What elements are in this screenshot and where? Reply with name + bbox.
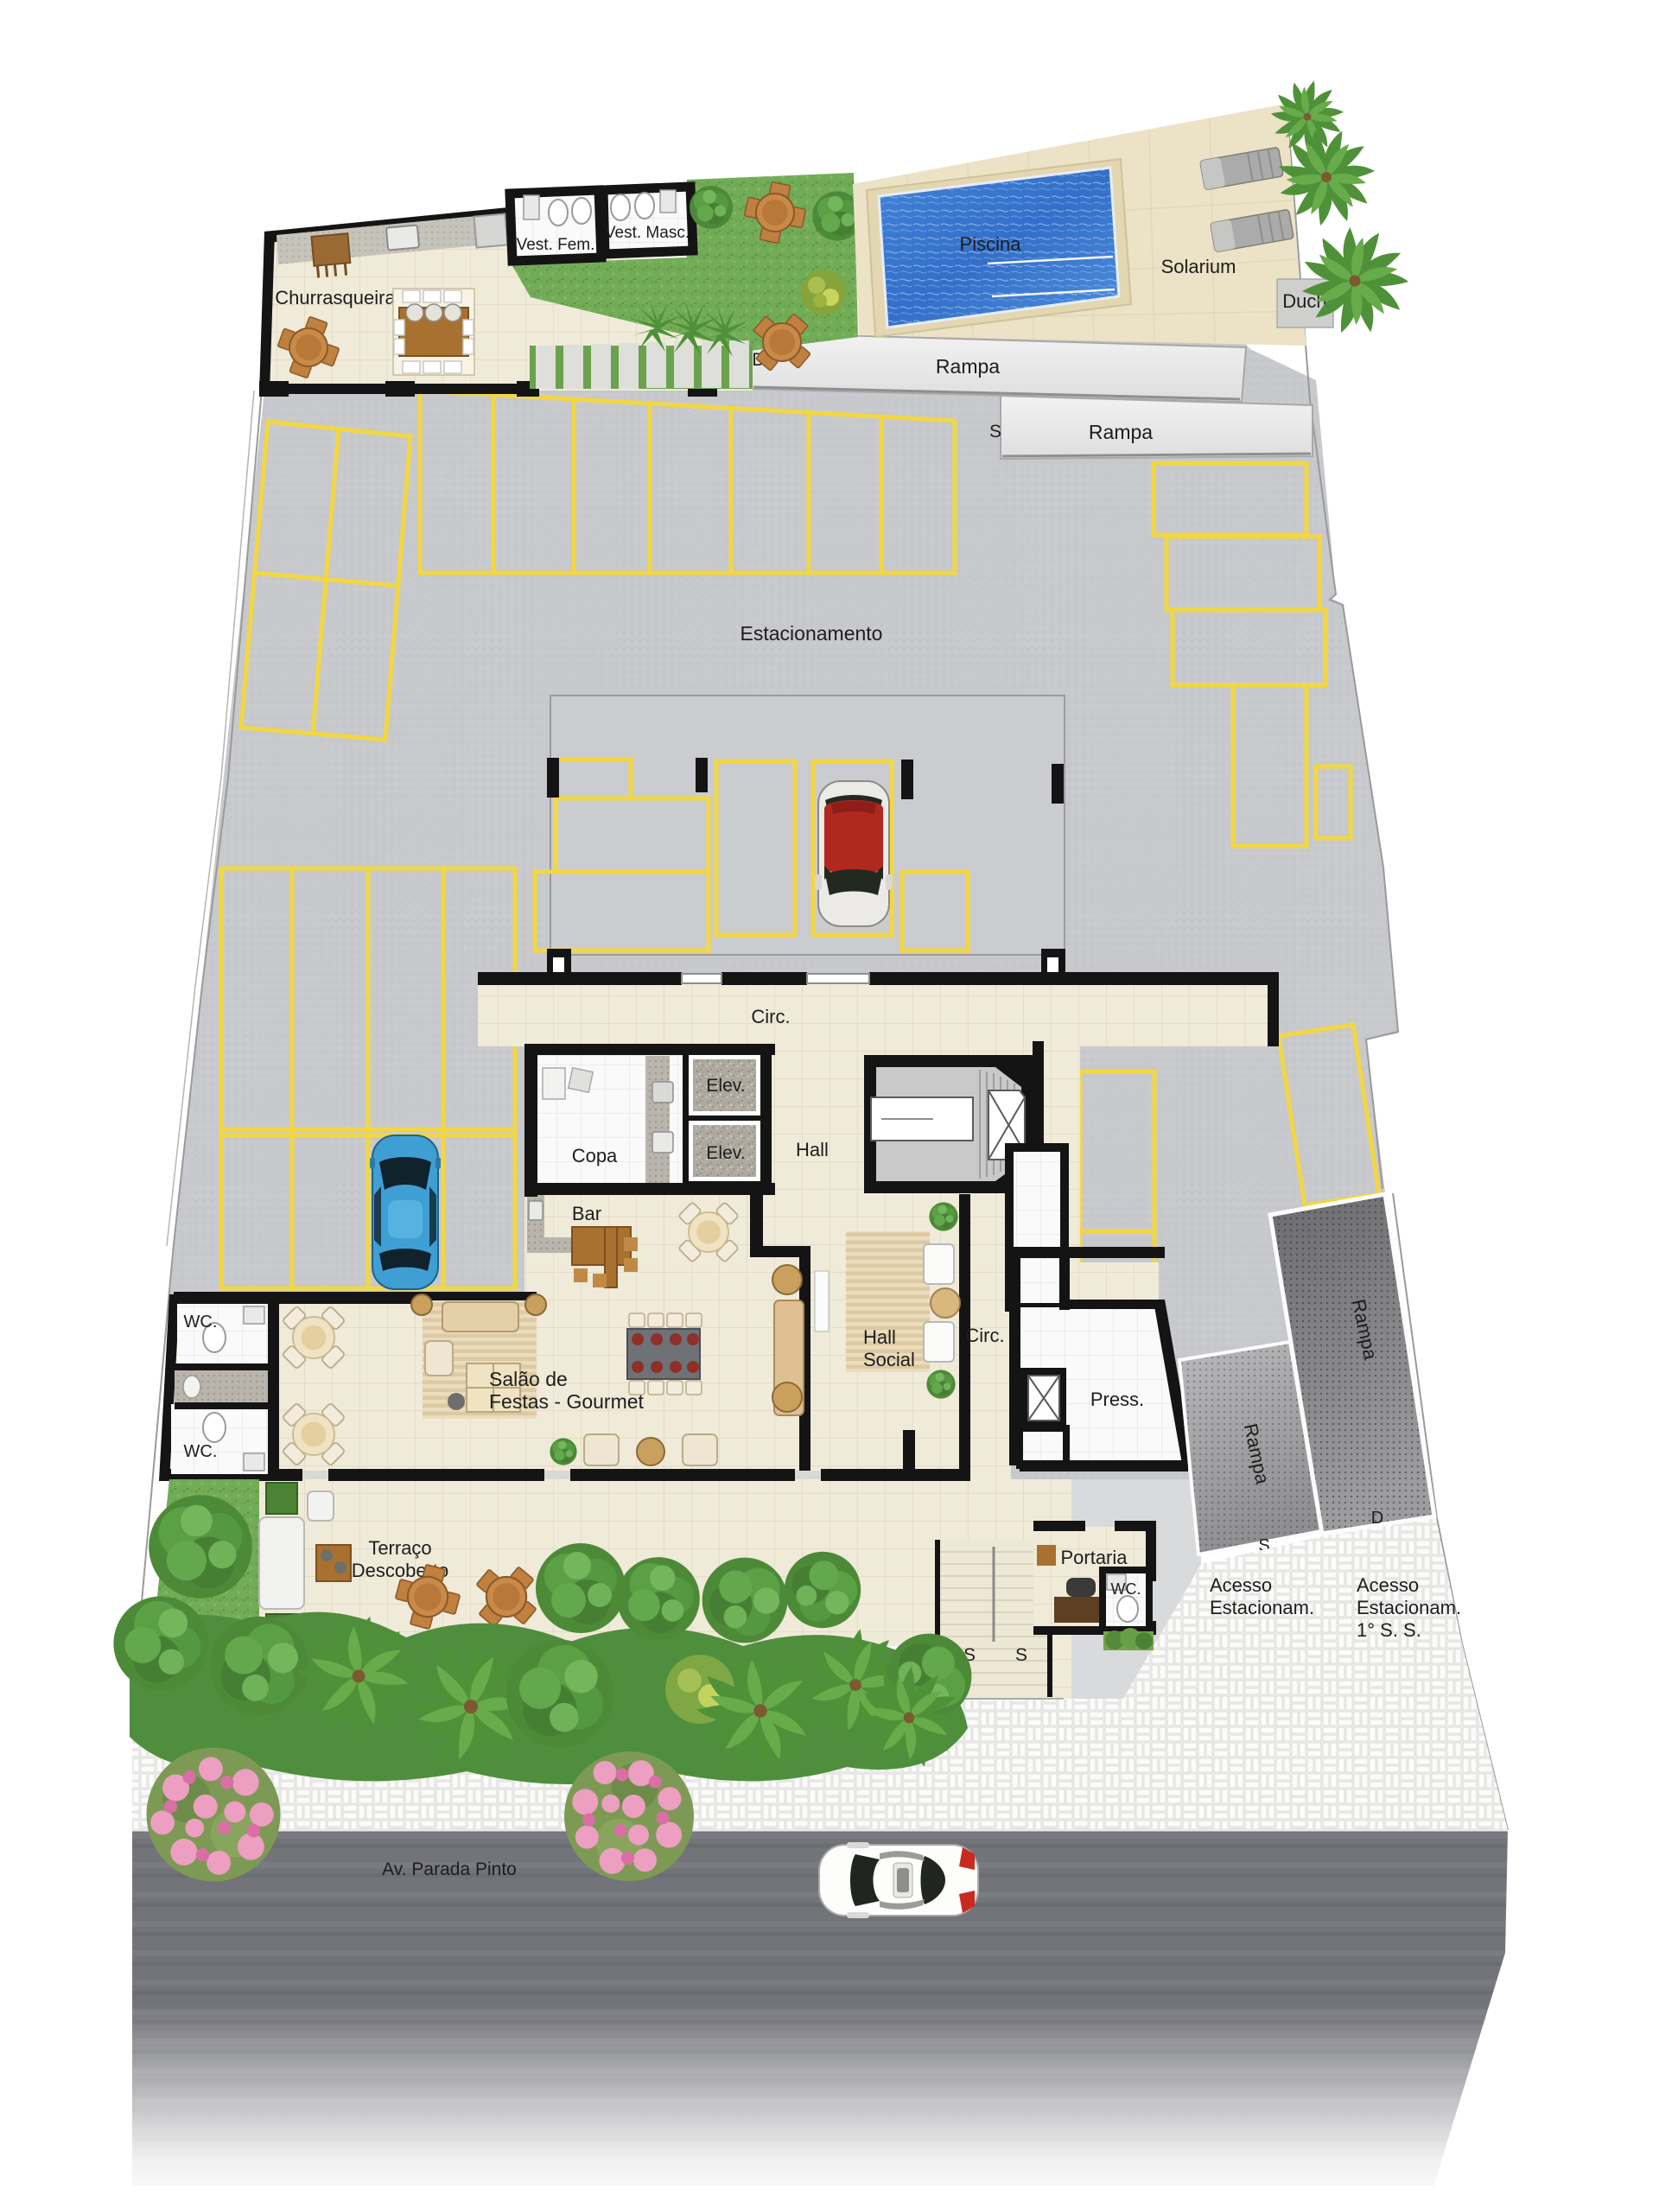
svg-text:Av. Parada Pinto: Av. Parada Pinto: [382, 1859, 517, 1879]
svg-text:Hall: Hall: [796, 1139, 829, 1160]
svg-text:Social: Social: [863, 1349, 915, 1370]
svg-text:Elev.: Elev.: [706, 1143, 745, 1163]
svg-text:WC.: WC.: [184, 1313, 218, 1332]
svg-text:Portaria: Portaria: [1060, 1547, 1128, 1568]
svg-text:D: D: [1371, 1509, 1383, 1528]
svg-text:Salão de: Salão de: [489, 1368, 568, 1390]
svg-text:Vest. Fem.: Vest. Fem.: [517, 236, 595, 254]
svg-text:Rampa: Rampa: [1089, 421, 1153, 443]
svg-text:S: S: [989, 422, 1001, 442]
svg-text:Festas - Gourmet: Festas - Gourmet: [489, 1390, 645, 1413]
svg-text:Piscina: Piscina: [960, 233, 1022, 255]
svg-text:Estacionamento: Estacionamento: [741, 622, 883, 645]
svg-text:Acesso: Acesso: [1210, 1574, 1272, 1596]
svg-text:Solarium: Solarium: [1161, 256, 1236, 277]
svg-text:WC.: WC.: [1111, 1580, 1141, 1598]
svg-text:Elev.: Elev.: [706, 1076, 745, 1096]
svg-text:Hall: Hall: [863, 1326, 896, 1348]
svg-text:Circ.: Circ.: [751, 1006, 790, 1027]
svg-text:Circ.: Circ.: [965, 1325, 1004, 1346]
svg-text:Rampa: Rampa: [936, 355, 1000, 378]
svg-text:WC.: WC.: [184, 1442, 218, 1461]
svg-text:Estacionam.: Estacionam.: [1357, 1597, 1461, 1618]
svg-text:Bar: Bar: [572, 1203, 601, 1224]
svg-text:Estacionam.: Estacionam.: [1210, 1597, 1314, 1618]
svg-text:Copa: Copa: [572, 1145, 618, 1166]
svg-text:S: S: [1015, 1645, 1027, 1665]
svg-text:Vest. Masc.: Vest. Masc.: [605, 224, 690, 242]
svg-text:Press.: Press.: [1090, 1389, 1144, 1410]
svg-text:Acesso: Acesso: [1357, 1574, 1419, 1596]
svg-text:Churrasqueira: Churrasqueira: [275, 287, 396, 308]
svg-text:Terraço: Terraço: [368, 1537, 431, 1559]
svg-text:1° S. S.: 1° S. S.: [1357, 1619, 1421, 1641]
